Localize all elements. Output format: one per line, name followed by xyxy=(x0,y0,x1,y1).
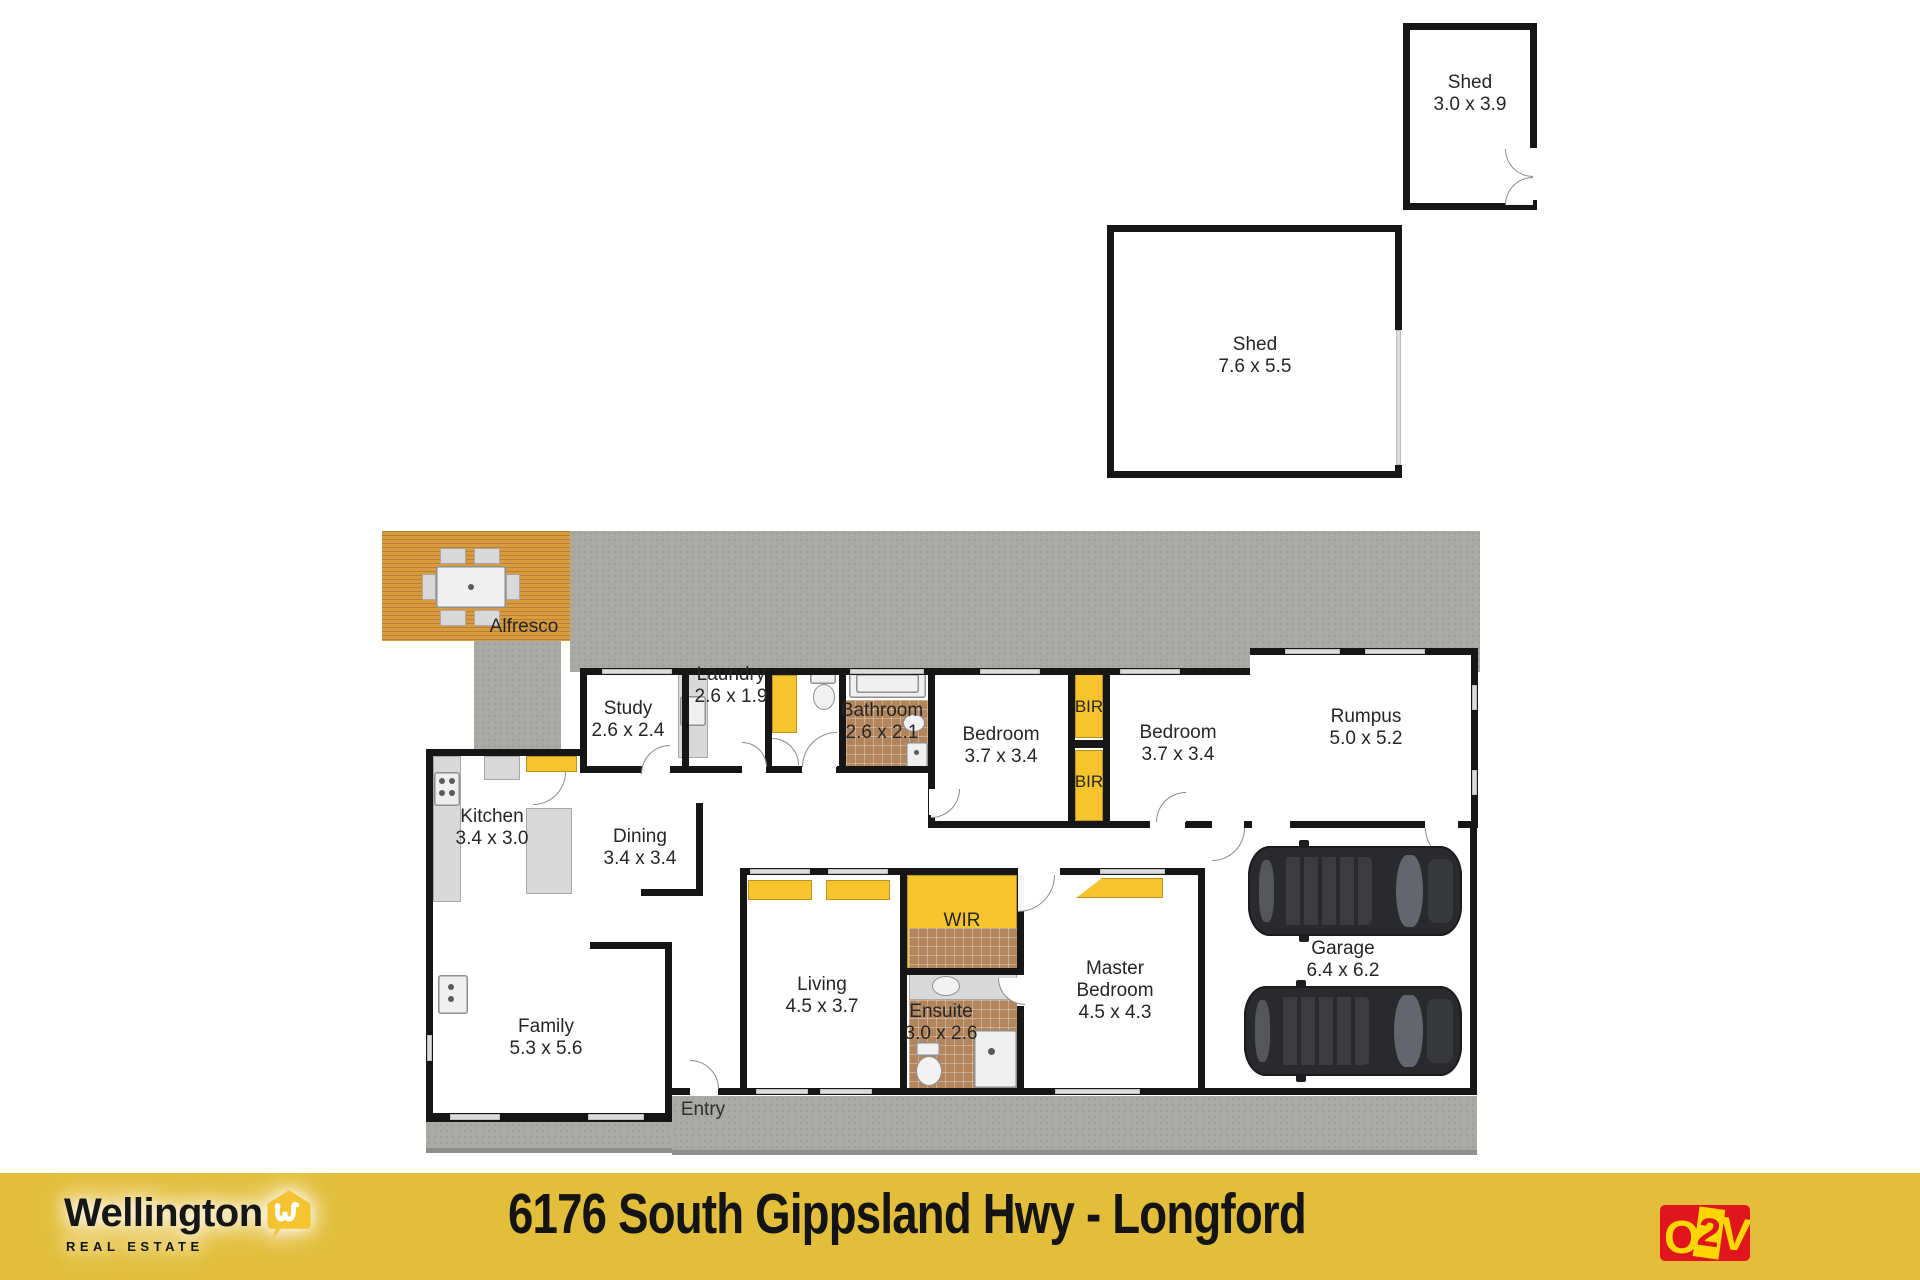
car-mirror xyxy=(1299,840,1309,847)
table-centre xyxy=(468,584,474,590)
wall xyxy=(641,889,703,896)
wall xyxy=(1107,471,1402,478)
appliance-fixture xyxy=(856,674,919,693)
wall xyxy=(740,868,747,1095)
fixture-dot xyxy=(448,984,454,990)
doorway xyxy=(1018,868,1060,875)
window xyxy=(1365,649,1425,654)
wall xyxy=(696,803,703,896)
wall xyxy=(669,766,742,773)
window xyxy=(1120,669,1180,674)
car-mirror xyxy=(1296,1075,1306,1082)
wall xyxy=(426,749,580,756)
wall xyxy=(682,668,689,766)
garage-car-2 xyxy=(1244,986,1462,1076)
car-rear-window xyxy=(1259,860,1274,921)
wall xyxy=(1470,821,1477,1095)
wall xyxy=(766,766,802,773)
outdoor-chair xyxy=(440,610,466,626)
storage-robe xyxy=(748,880,812,900)
room-label-bir-lower: BIR xyxy=(1075,771,1103,793)
room-label-bedroom-1: Bedroom3.7 x 3.4 xyxy=(962,724,1039,768)
car-windshield xyxy=(1394,995,1422,1067)
car-hood xyxy=(1427,999,1453,1064)
window xyxy=(1100,869,1165,874)
appliance-fixture xyxy=(434,772,460,806)
basin-toilet xyxy=(813,684,835,710)
window xyxy=(1285,649,1340,654)
fixture-dot xyxy=(914,750,919,755)
fixture-dot xyxy=(988,1048,995,1055)
wall xyxy=(1395,465,1402,478)
room-label-study: Study2.6 x 2.4 xyxy=(592,698,665,742)
room-label-bathroom: Bathroom2.6 x 2.1 xyxy=(841,700,923,744)
window xyxy=(980,669,1040,674)
wall xyxy=(1107,225,1402,232)
wall xyxy=(1198,868,1205,1095)
storage-robe xyxy=(526,756,577,772)
car-roof xyxy=(1282,857,1372,925)
wall xyxy=(1075,740,1103,748)
wall xyxy=(1530,23,1537,148)
property-address: 6176 South Gippsland Hwy - Longford xyxy=(508,1181,1292,1247)
concrete-path xyxy=(474,641,561,751)
wall xyxy=(665,942,672,1122)
wall xyxy=(900,875,907,1088)
doorway xyxy=(1252,821,1290,828)
room-label-bedroom-2: Bedroom3.7 x 3.4 xyxy=(1139,722,1216,766)
wall xyxy=(1103,668,1110,828)
outdoor-chair xyxy=(440,548,466,564)
room-label-shed-small: Shed3.0 x 3.9 xyxy=(1434,72,1507,116)
car-windshield xyxy=(1396,855,1424,927)
shed-roller-opening xyxy=(1396,330,1401,465)
room-label-wir: WIR xyxy=(944,910,981,932)
storage-robe xyxy=(826,880,890,900)
bench-fixture xyxy=(484,756,520,780)
room-label-dining: Dining3.4 x 3.4 xyxy=(604,826,677,870)
window xyxy=(756,1089,808,1094)
wall xyxy=(836,766,935,773)
doorway xyxy=(1150,821,1185,828)
storage-robe xyxy=(772,675,797,733)
room-label-alfresco: Alfresco xyxy=(490,616,559,638)
room-label-laundry: Laundry2.6 x 1.9 xyxy=(695,664,768,708)
wall xyxy=(1244,821,1252,828)
appliance-fixture xyxy=(438,975,468,1014)
wall xyxy=(1290,821,1425,828)
footer-banner: Wellington REAL ESTATE 6176 South Gippsl… xyxy=(0,1173,1920,1280)
window xyxy=(1472,770,1477,795)
agency-subtitle: REAL ESTATE xyxy=(66,1239,204,1254)
wall xyxy=(590,942,672,949)
wall xyxy=(1107,225,1114,478)
room-label-garage: Garage6.4 x 6.2 xyxy=(1307,938,1380,982)
floorplan-canvas: Shed3.0 x 3.9 Shed7.6 x 5.5 Alfresco Stu… xyxy=(0,0,1920,1150)
garage-car-1 xyxy=(1248,846,1462,936)
appliance-fixture xyxy=(906,742,928,768)
appliance-fixture xyxy=(974,1030,1017,1088)
photography-logo: O 2 V xyxy=(1660,1205,1750,1261)
window xyxy=(850,669,924,674)
wall xyxy=(580,766,645,773)
floorplan-page: Shed3.0 x 3.9 Shed7.6 x 5.5 Alfresco Stu… xyxy=(0,0,1920,1280)
window xyxy=(750,869,810,874)
room-label-kitchen: Kitchen3.4 x 3.0 xyxy=(456,806,529,850)
car-rear-window xyxy=(1255,1000,1270,1061)
window xyxy=(427,1035,432,1061)
wall xyxy=(1471,648,1478,828)
concrete-path xyxy=(672,1096,1477,1155)
wall xyxy=(1068,668,1075,828)
doorway xyxy=(690,1088,718,1095)
fixture-dot xyxy=(448,996,454,1002)
room-label-entry: Entry xyxy=(681,1099,725,1121)
car-mirror xyxy=(1296,980,1306,987)
outdoor-chair xyxy=(506,574,520,600)
agency-house-icon xyxy=(266,1189,312,1239)
wall xyxy=(928,821,1150,828)
fixture-dot xyxy=(449,778,455,784)
fixture-dot xyxy=(439,790,445,796)
fixture-dot xyxy=(449,790,455,796)
car-roof xyxy=(1279,997,1371,1065)
basin-toilet xyxy=(932,976,960,996)
car-hood xyxy=(1428,859,1454,924)
wall xyxy=(1403,23,1537,30)
window xyxy=(828,869,888,874)
window xyxy=(1472,685,1477,710)
window xyxy=(1055,1089,1140,1094)
doorway xyxy=(1212,821,1244,828)
room-label-ensuite: Ensuite3.0 x 2.6 xyxy=(905,1001,978,1045)
wall xyxy=(1185,821,1212,828)
room-label-master-bedroom: MasterBedroom4.5 x 4.3 xyxy=(1076,958,1153,1024)
room-label-living: Living4.5 x 3.7 xyxy=(786,974,859,1018)
window xyxy=(588,1114,644,1120)
wall xyxy=(1017,1006,1024,1088)
wall xyxy=(1403,23,1410,210)
outdoor-chair xyxy=(474,548,500,564)
room-label-bir-upper: BIR xyxy=(1075,696,1103,718)
window xyxy=(450,1114,500,1120)
wall xyxy=(1395,225,1402,330)
wall xyxy=(426,749,433,1122)
fixture-dot xyxy=(439,778,445,784)
photography-logo-v: V xyxy=(1717,1206,1750,1261)
doorway xyxy=(802,766,836,773)
wall xyxy=(580,668,587,773)
doorway xyxy=(742,766,766,773)
agency-name: Wellington xyxy=(64,1191,263,1236)
wall xyxy=(907,968,1017,975)
window xyxy=(820,1089,872,1094)
concrete-path xyxy=(426,1122,677,1153)
doorway xyxy=(1425,821,1458,828)
room-label-family: Family5.3 x 5.6 xyxy=(510,1016,583,1060)
room-label-rumpus: Rumpus5.0 x 5.2 xyxy=(1330,706,1403,750)
basin-toilet xyxy=(916,1056,942,1086)
agency-logo: Wellington REAL ESTATE xyxy=(64,1189,324,1269)
bench-fixture xyxy=(526,808,572,894)
window xyxy=(602,669,672,674)
outdoor-chair xyxy=(422,574,436,600)
room-label-shed-large: Shed7.6 x 5.5 xyxy=(1219,334,1292,378)
